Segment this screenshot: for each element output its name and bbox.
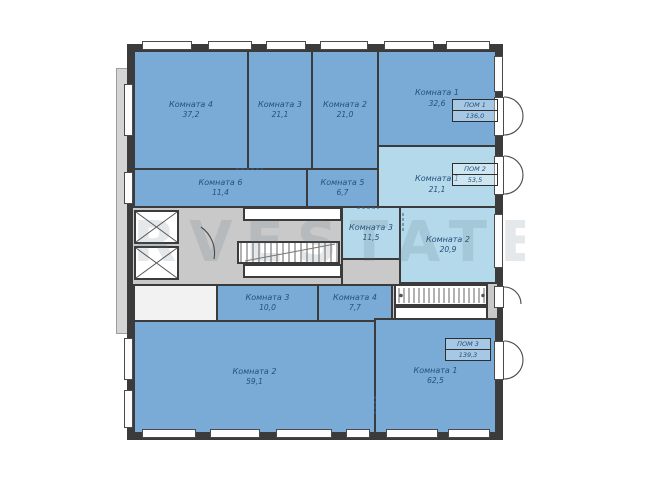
room: Комната 611,4 bbox=[133, 168, 308, 208]
unit-name: ПОМ 1 bbox=[453, 100, 497, 111]
unit-label-box: ПОМ 3 139,3 bbox=[445, 338, 491, 361]
vestibule bbox=[133, 284, 218, 322]
window bbox=[320, 41, 368, 50]
room: Комната 310,0 bbox=[216, 284, 319, 322]
window bbox=[266, 41, 306, 50]
room-label: Комната 611,4 bbox=[199, 177, 243, 199]
room-label: Комната 162,5 bbox=[414, 365, 458, 387]
window bbox=[124, 390, 133, 428]
room: Комната 47,7 bbox=[317, 284, 393, 322]
unit-name: ПОМ 3 bbox=[446, 339, 490, 350]
unit-area: 136,0 bbox=[453, 111, 497, 121]
room-label: Комната 56,7 bbox=[321, 177, 365, 199]
window bbox=[210, 429, 260, 438]
room-label: Комната 310,0 bbox=[246, 292, 290, 314]
watermark: RVESTATE bbox=[133, 210, 525, 284]
window bbox=[384, 41, 434, 50]
entrance-landing bbox=[394, 306, 488, 320]
window bbox=[346, 429, 370, 438]
unit-label-box: ПОМ 2 53,5 bbox=[452, 163, 498, 186]
window bbox=[448, 429, 490, 438]
floor-plan: Комната 437,2 Комната 321,1 Комната 221,… bbox=[0, 0, 653, 489]
window bbox=[494, 56, 503, 92]
room: Комната 162,5 bbox=[374, 318, 497, 434]
room: Комната 437,2 bbox=[133, 50, 249, 170]
window bbox=[446, 41, 490, 50]
window bbox=[142, 41, 192, 50]
exterior-staircase bbox=[394, 284, 488, 306]
unit-area: 53,5 bbox=[453, 175, 497, 185]
room: Комната 56,7 bbox=[306, 168, 379, 208]
room-label: Комната 437,2 bbox=[169, 99, 213, 121]
window bbox=[276, 429, 332, 438]
unit-name: ПОМ 2 bbox=[453, 164, 497, 175]
unit-area: 139,3 bbox=[446, 350, 490, 360]
room: Комната 259,1 bbox=[133, 320, 376, 434]
room: Комната 321,1 bbox=[247, 50, 313, 170]
window bbox=[124, 172, 133, 204]
room-label: Комната 259,1 bbox=[233, 366, 277, 388]
window bbox=[142, 429, 196, 438]
room: Комната 221,0 bbox=[311, 50, 379, 170]
room-label: Комната 321,1 bbox=[258, 99, 302, 121]
door-opening bbox=[494, 341, 504, 380]
window bbox=[124, 338, 133, 380]
window bbox=[124, 84, 133, 136]
window bbox=[208, 41, 252, 50]
room-label: Комната 221,0 bbox=[323, 99, 367, 121]
unit-label-box: ПОМ 1 136,0 bbox=[452, 99, 498, 122]
room-label: Комната 47,7 bbox=[333, 292, 377, 314]
door-opening bbox=[494, 286, 504, 308]
window bbox=[386, 429, 438, 438]
